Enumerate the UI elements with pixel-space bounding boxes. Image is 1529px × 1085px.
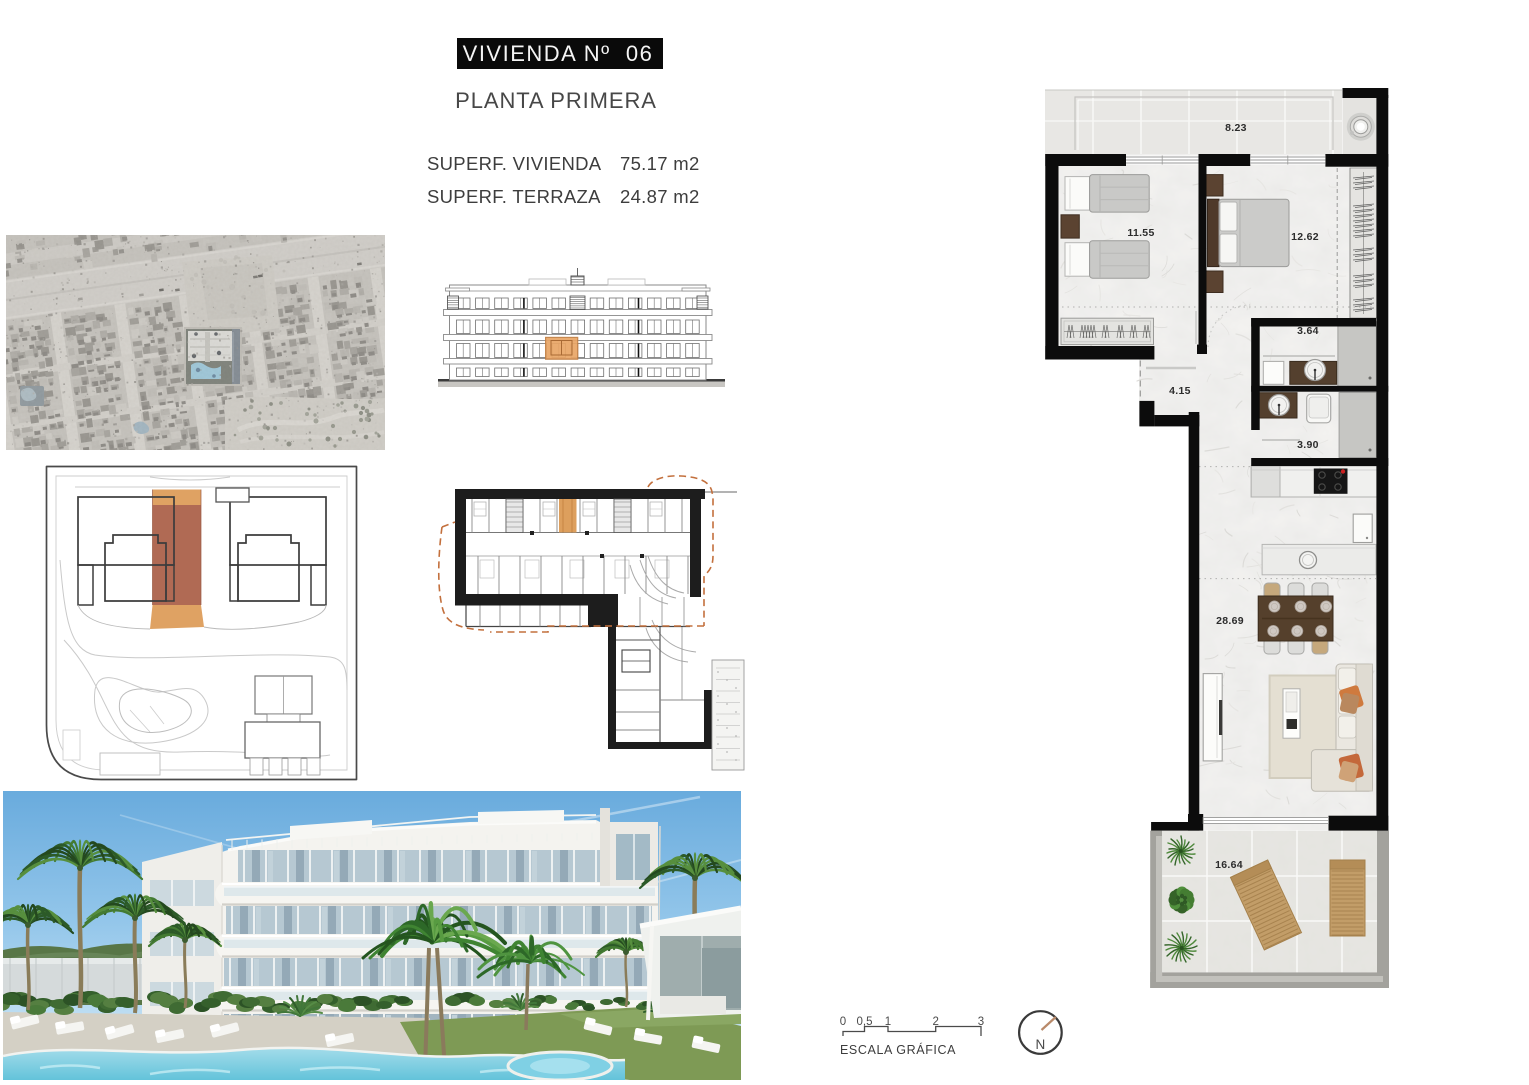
svg-text:75.17 m2: 75.17 m2 xyxy=(620,153,700,174)
svg-text:ESCALA GRÁFICA: ESCALA GRÁFICA xyxy=(840,1042,956,1057)
svg-text:3.64: 3.64 xyxy=(1297,325,1319,337)
svg-text:16.64: 16.64 xyxy=(1215,859,1243,871)
svg-text:11.55: 11.55 xyxy=(1127,227,1154,239)
svg-text:3.90: 3.90 xyxy=(1297,439,1319,451)
svg-text:SUPERF. TERRAZA: SUPERF. TERRAZA xyxy=(427,186,601,207)
svg-text:28.69: 28.69 xyxy=(1216,615,1244,627)
svg-text:8.23: 8.23 xyxy=(1225,122,1247,134)
svg-text:24.87 m2: 24.87 m2 xyxy=(620,186,700,207)
svg-text:PLANTA PRIMERA: PLANTA PRIMERA xyxy=(455,88,657,113)
svg-text:N: N xyxy=(1036,1037,1046,1052)
svg-text:VIVIENDA Nº 06: VIVIENDA Nº 06 xyxy=(463,41,654,66)
svg-text:12.62: 12.62 xyxy=(1291,231,1319,243)
svg-text:0: 0 xyxy=(840,1016,846,1028)
svg-text:SUPERF. VIVIENDA: SUPERF. VIVIENDA xyxy=(427,153,602,174)
svg-text:4.15: 4.15 xyxy=(1169,385,1191,397)
